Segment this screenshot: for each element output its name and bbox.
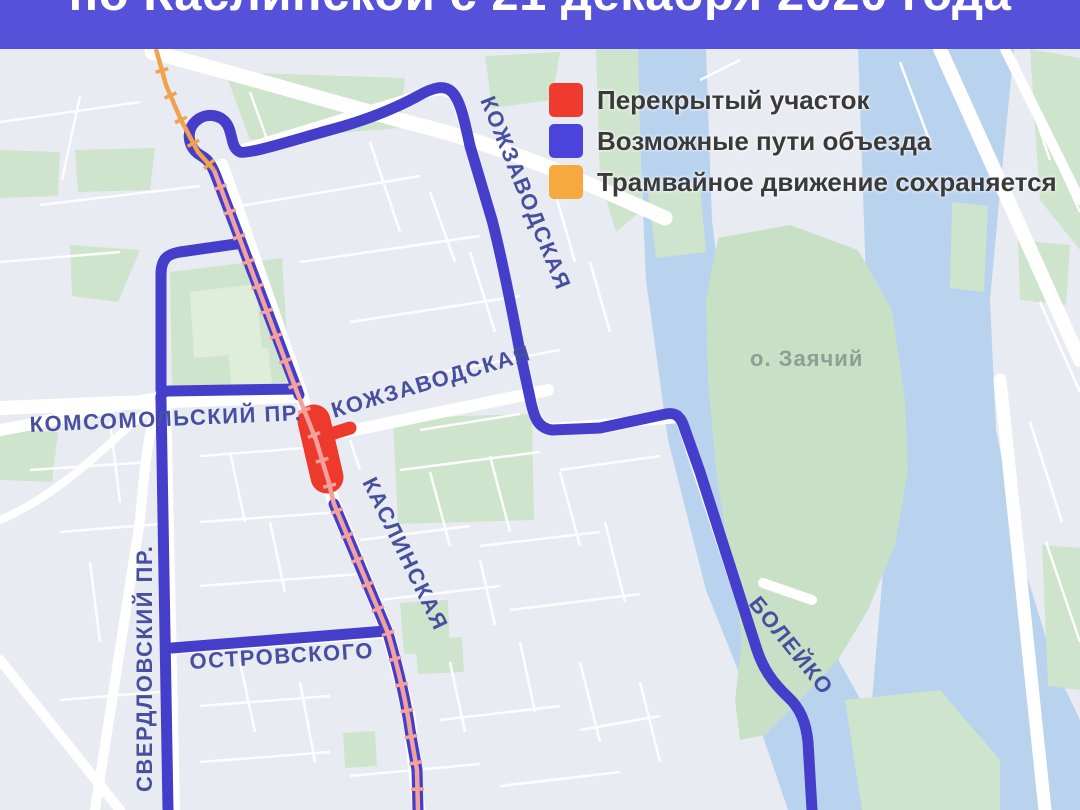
detour-routes-label: Возможные пути объезда <box>597 126 931 157</box>
legend-row-detour: Возможные пути объезда <box>549 124 1057 158</box>
tram-service-label: Трамвайное движение сохраняется <box>597 167 1057 198</box>
infographic: КОЖЗАВОДСКАЯ КОЖЗАВОДСКАЯ КОМСОМОЛЬСКИЙ … <box>0 0 1080 810</box>
label-sverdlovsky: СВЕРДЛОВСКИЙ ПР. <box>132 545 157 792</box>
header-banner: по Каслинской с 21 декабря 2020 года <box>0 0 1080 49</box>
legend-row-tram: Трамвайное движение сохраняется <box>549 165 1057 199</box>
page-title: по Каслинской с 21 декабря 2020 года <box>0 0 1080 19</box>
closed-section-label: Перекрытый участок <box>597 85 870 116</box>
closed-stub-kozhzavodskaya <box>331 428 350 434</box>
closed-section-swatch <box>549 83 583 117</box>
detour-routes-swatch <box>549 124 583 158</box>
tram-service-swatch <box>549 165 583 199</box>
legend: Перекрытый участок Возможные пути объезд… <box>549 83 1057 206</box>
legend-row-closed: Перекрытый участок <box>549 83 1057 117</box>
label-zayachiy-island: о. Заячий <box>750 346 863 371</box>
